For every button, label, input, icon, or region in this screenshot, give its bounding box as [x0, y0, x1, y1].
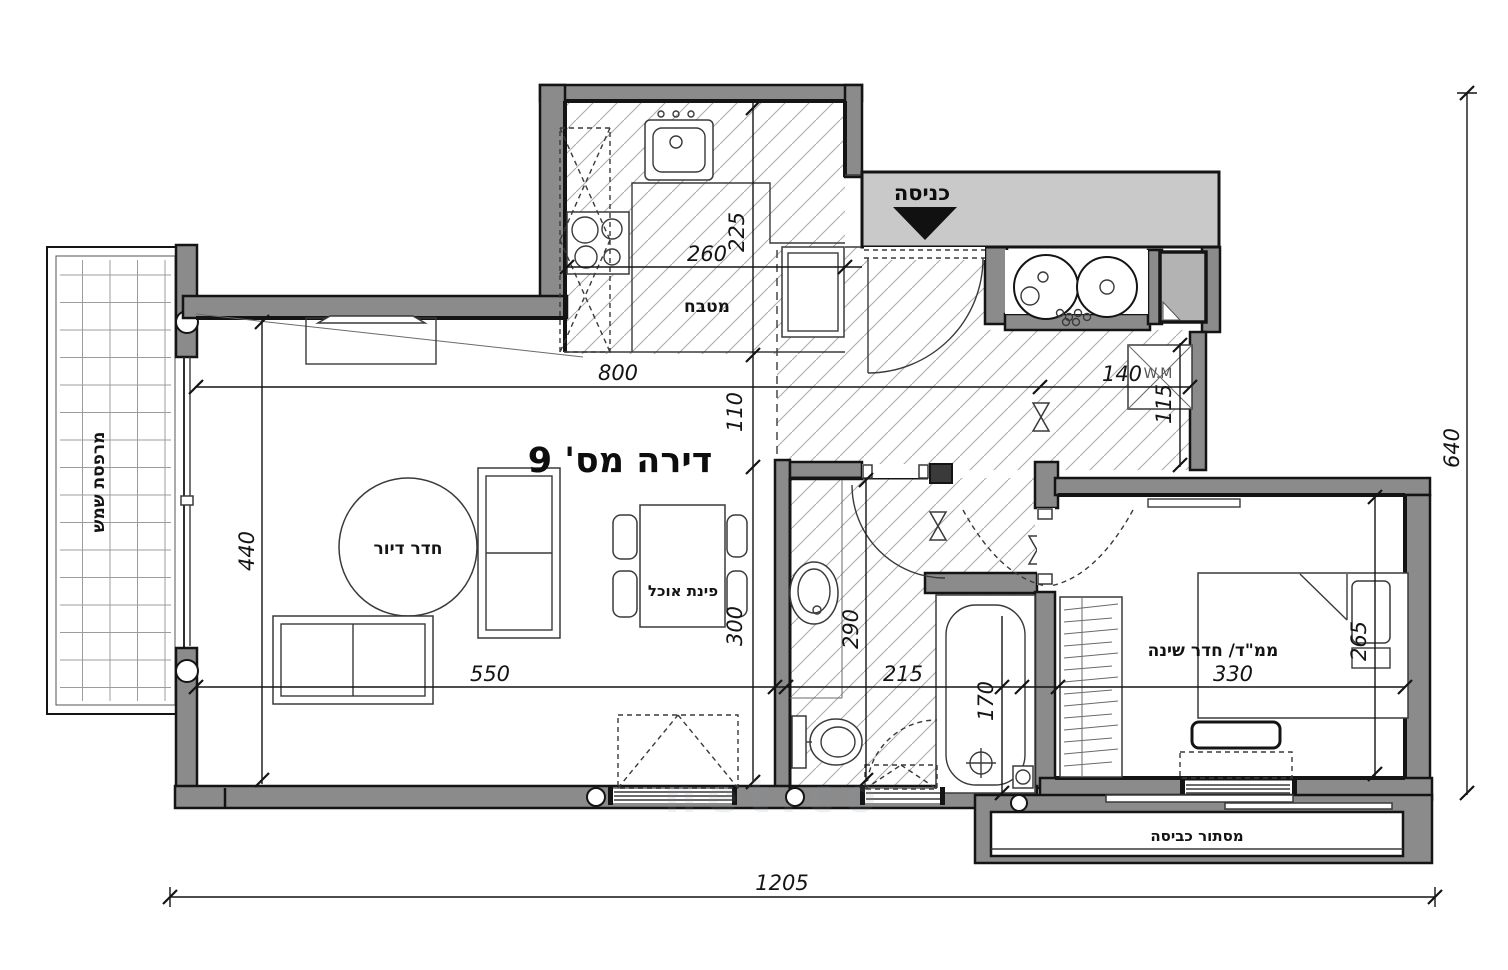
dining-label: פינת אוכל	[648, 582, 718, 600]
dim-living-width: 800	[598, 361, 638, 385]
floor-plan-drawing: מרפסת שמש	[0, 0, 1508, 970]
column-marker	[1011, 795, 1027, 811]
washing-machine-label: W.M	[1144, 366, 1173, 382]
laundry-area: מסתור כביסה	[975, 795, 1432, 863]
apartment-title: דירה מס' 9	[528, 441, 713, 481]
shelf	[1148, 499, 1240, 507]
toilet	[792, 716, 862, 768]
tv-cabinet	[306, 316, 436, 364]
sofa-right	[478, 468, 560, 638]
dim-dining-depth: 300	[723, 606, 747, 646]
dim-hall-strip: 110	[723, 392, 747, 432]
kitchen-label: מטבח	[684, 297, 730, 317]
dim-bedroom-width: 330	[1213, 662, 1253, 686]
bench-outline	[1180, 752, 1292, 778]
kitchen-sink	[645, 111, 713, 180]
dim-total-height: 640	[1440, 428, 1464, 468]
dim-sofa-wall: 550	[470, 662, 510, 686]
fridge	[782, 247, 844, 337]
chair	[613, 515, 637, 559]
laundry-rail	[1106, 795, 1293, 802]
living-label: חדר דיור	[374, 539, 443, 559]
chair	[727, 515, 747, 557]
room-living: חדר דיור פינת אוכל דירה מס' 9	[196, 314, 804, 806]
laundry-label: מסתור כביסה	[1150, 827, 1243, 845]
dim-kitchen-depth: 225	[725, 212, 749, 252]
bath-sink	[790, 562, 838, 624]
balcony-label: מרפסת שמש	[89, 432, 109, 533]
dim-utility-width: 140	[1102, 362, 1142, 386]
dim-total-width: 1205	[755, 871, 808, 895]
boiler-icon	[1014, 255, 1078, 319]
boiler-icon	[1077, 257, 1137, 317]
chair	[613, 571, 637, 617]
balcony-tiles	[60, 260, 171, 701]
bedroom-door-swing	[1050, 510, 1133, 586]
entrance-label: כניסה	[894, 181, 950, 205]
floor-plan-canvas: מרפסת שמש	[0, 0, 1508, 970]
dim-tub-length: 170	[974, 681, 998, 721]
dim-living-depth: 440	[235, 531, 259, 571]
room-balcony: מרפסת שמש	[47, 245, 198, 790]
utility-niche	[1005, 250, 1206, 326]
dim-kitchen-width: 260	[687, 242, 727, 266]
bedroom-label: ממ"ד/ חדר שינה	[1148, 641, 1279, 661]
stove-icon	[567, 212, 629, 274]
dim-bedroom-depth: 265	[1347, 621, 1371, 661]
sofa-bottom	[273, 616, 433, 704]
dim-bath-depth: 290	[839, 609, 863, 649]
dim-utility-depth: 115	[1152, 384, 1176, 424]
column-marker	[176, 660, 198, 682]
dim-bath-width: 215	[883, 662, 923, 686]
watermark: net.co	[664, 769, 886, 823]
laundry-rail	[1225, 803, 1392, 809]
bench	[1192, 722, 1280, 748]
column-marker	[587, 788, 605, 806]
